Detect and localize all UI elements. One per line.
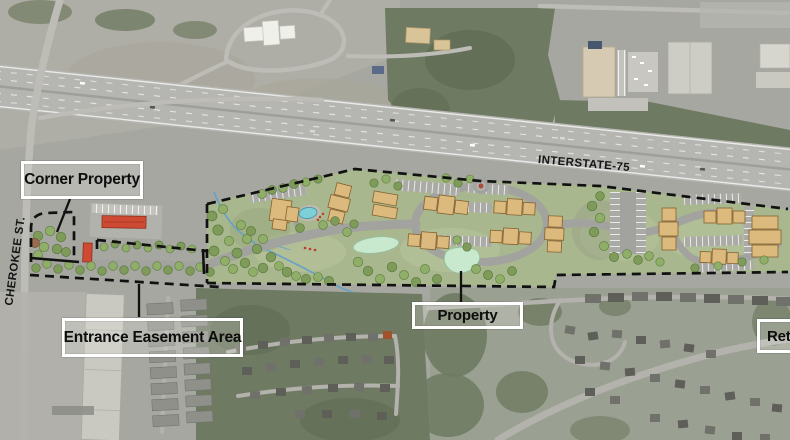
entrance-easement-text: Entrance Easement Area — [64, 329, 242, 347]
corner-property-text: Corner Property — [24, 171, 140, 189]
small-red-building — [83, 243, 93, 262]
industrial-area — [0, 292, 124, 440]
map-canvas — [0, 0, 790, 440]
corner-property-label: Corner Property — [21, 161, 143, 199]
retail-text: Retail — [767, 328, 790, 345]
property-text: Property — [437, 307, 497, 324]
site-plan-figure: Corner Property Entrance Easement Area P… — [0, 0, 790, 440]
property-label: Property — [412, 302, 523, 329]
retail-label: Retail — [757, 319, 790, 353]
entrance-easement-label: Entrance Easement Area — [62, 318, 243, 357]
